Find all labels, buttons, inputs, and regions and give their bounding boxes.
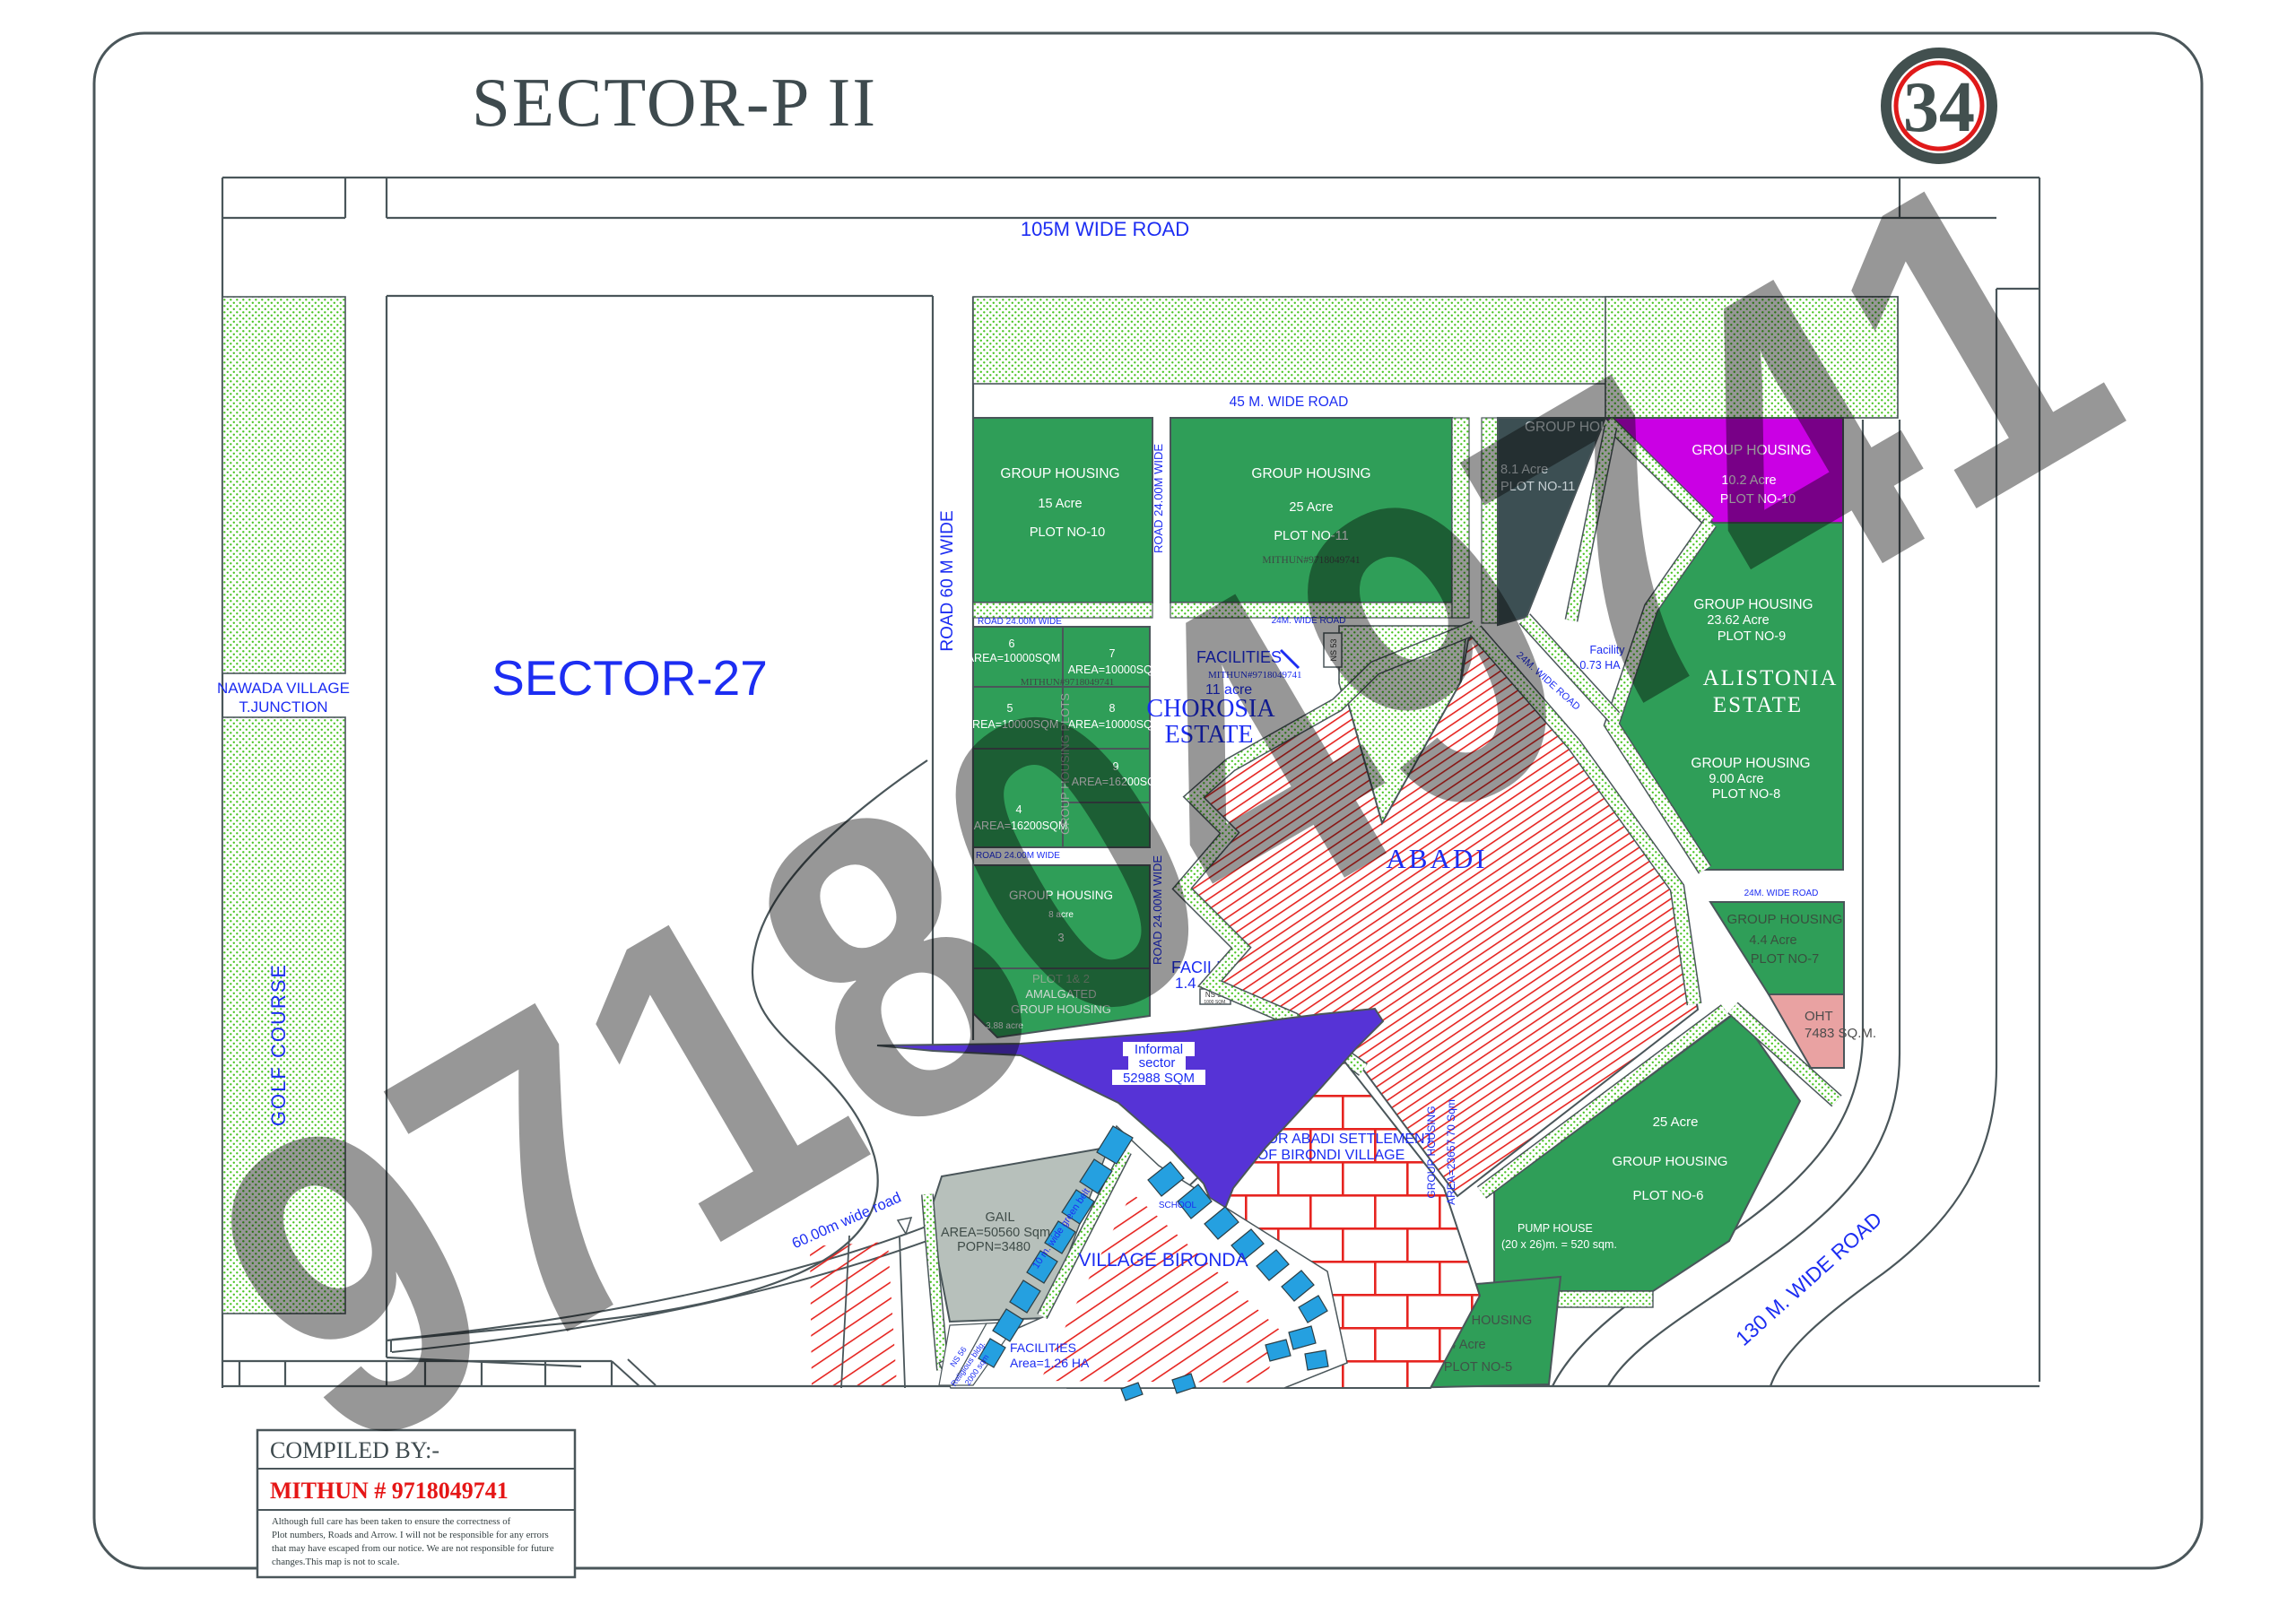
svg-text:15 Acre: 15 Acre — [1038, 497, 1082, 511]
svg-text:VILLAGE BIRONDA: VILLAGE BIRONDA — [1078, 1250, 1248, 1271]
svg-text:7483 SQ.M.: 7483 SQ.M. — [1805, 1026, 1876, 1041]
svg-text:45 M. WIDE ROAD: 45 M. WIDE ROAD — [1230, 395, 1349, 410]
svg-text:Area=1.26 HA: Area=1.26 HA — [1010, 1356, 1090, 1370]
svg-text:GROUP HOUSING: GROUP HOUSING — [1613, 1154, 1728, 1169]
svg-text:GROUP HOUSING: GROUP HOUSING — [1000, 466, 1119, 481]
svg-text:NAWADA VILLAGE: NAWADA VILLAGE — [217, 680, 350, 697]
svg-text:Plot numbers, Roads and Arrow.: Plot numbers, Roads and Arrow. I will no… — [272, 1530, 549, 1540]
svg-text:GAIL: GAIL — [985, 1210, 1014, 1225]
svg-text:changes.This map is not to sca: changes.This map is not to scale. — [272, 1557, 399, 1567]
svg-text:GROUP HOUSING: GROUP HOUSING — [1727, 912, 1843, 927]
svg-text:OHT: OHT — [1805, 1009, 1833, 1024]
svg-text:PLOT NO-6: PLOT NO-6 — [1633, 1188, 1704, 1203]
svg-text:ROAD 60 M WIDE: ROAD 60 M WIDE — [938, 510, 957, 651]
svg-text:SCHOOL: SCHOOL — [1159, 1201, 1197, 1210]
svg-text:T.JUNCTION: T.JUNCTION — [239, 698, 327, 716]
svg-text:PLOT NO-7: PLOT NO-7 — [1751, 952, 1819, 967]
svg-text:SECTOR-P II: SECTOR-P II — [472, 64, 877, 141]
svg-text:AREA=50560 Sqm: AREA=50560 Sqm — [941, 1226, 1050, 1240]
svg-text:PLOT NO-5: PLOT NO-5 — [1444, 1360, 1512, 1375]
svg-text:OF BIRONDI VILLAGE: OF BIRONDI VILLAGE — [1257, 1148, 1405, 1163]
svg-text:25 Acre: 25 Acre — [1653, 1115, 1699, 1130]
svg-text:9.00 Acre: 9.00 Acre — [1709, 772, 1763, 786]
svg-text:24M. WIDE ROAD: 24M. WIDE ROAD — [1744, 889, 1819, 898]
svg-text:POPN=3480: POPN=3480 — [957, 1240, 1031, 1254]
svg-text:PLOT NO-8: PLOT NO-8 — [1712, 787, 1780, 802]
svg-text:(20 x 26)m. = 520 sqm.: (20 x 26)m. = 520 sqm. — [1501, 1238, 1617, 1251]
svg-text:AREA=23657.70 Sqm: AREA=23657.70 Sqm — [1445, 1099, 1457, 1205]
svg-text:PLOT NO-10: PLOT NO-10 — [1030, 525, 1105, 540]
svg-text:FACILITIES: FACILITIES — [1010, 1340, 1076, 1355]
svg-text:105M WIDE ROAD: 105M WIDE ROAD — [1021, 218, 1189, 240]
svg-text:SECTOR-27: SECTOR-27 — [491, 650, 768, 706]
svg-text:PUMP HOUSE: PUMP HOUSE — [1518, 1222, 1593, 1235]
svg-text:that may have escaped from our: that may have escaped from our notice. W… — [272, 1543, 554, 1554]
svg-text:4.4 Acre: 4.4 Acre — [1749, 933, 1796, 948]
svg-text:GROUP HOUSING: GROUP HOUSING — [1425, 1106, 1438, 1198]
